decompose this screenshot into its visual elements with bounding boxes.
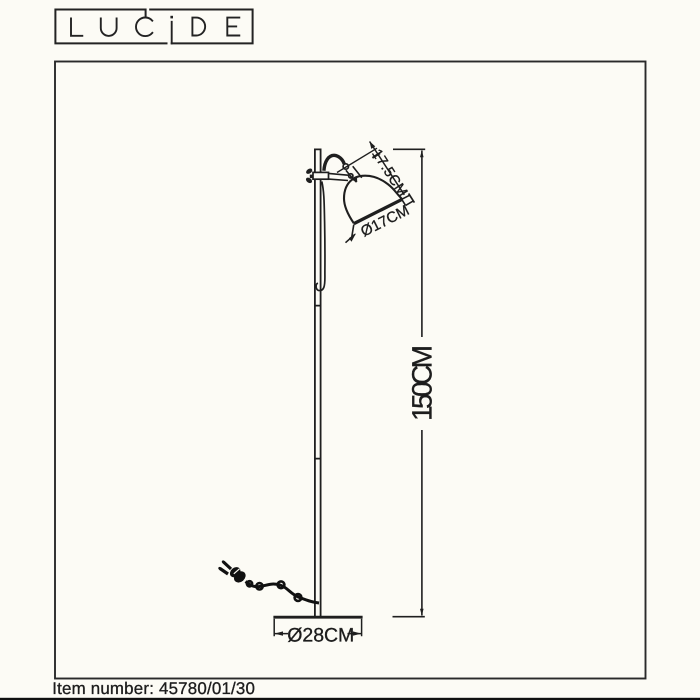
svg-text:150CM: 150CM: [406, 345, 437, 421]
svg-text:Ø28CM: Ø28CM: [287, 625, 354, 647]
svg-text:Item number: 45780/01/30: Item number: 45780/01/30: [52, 679, 255, 698]
